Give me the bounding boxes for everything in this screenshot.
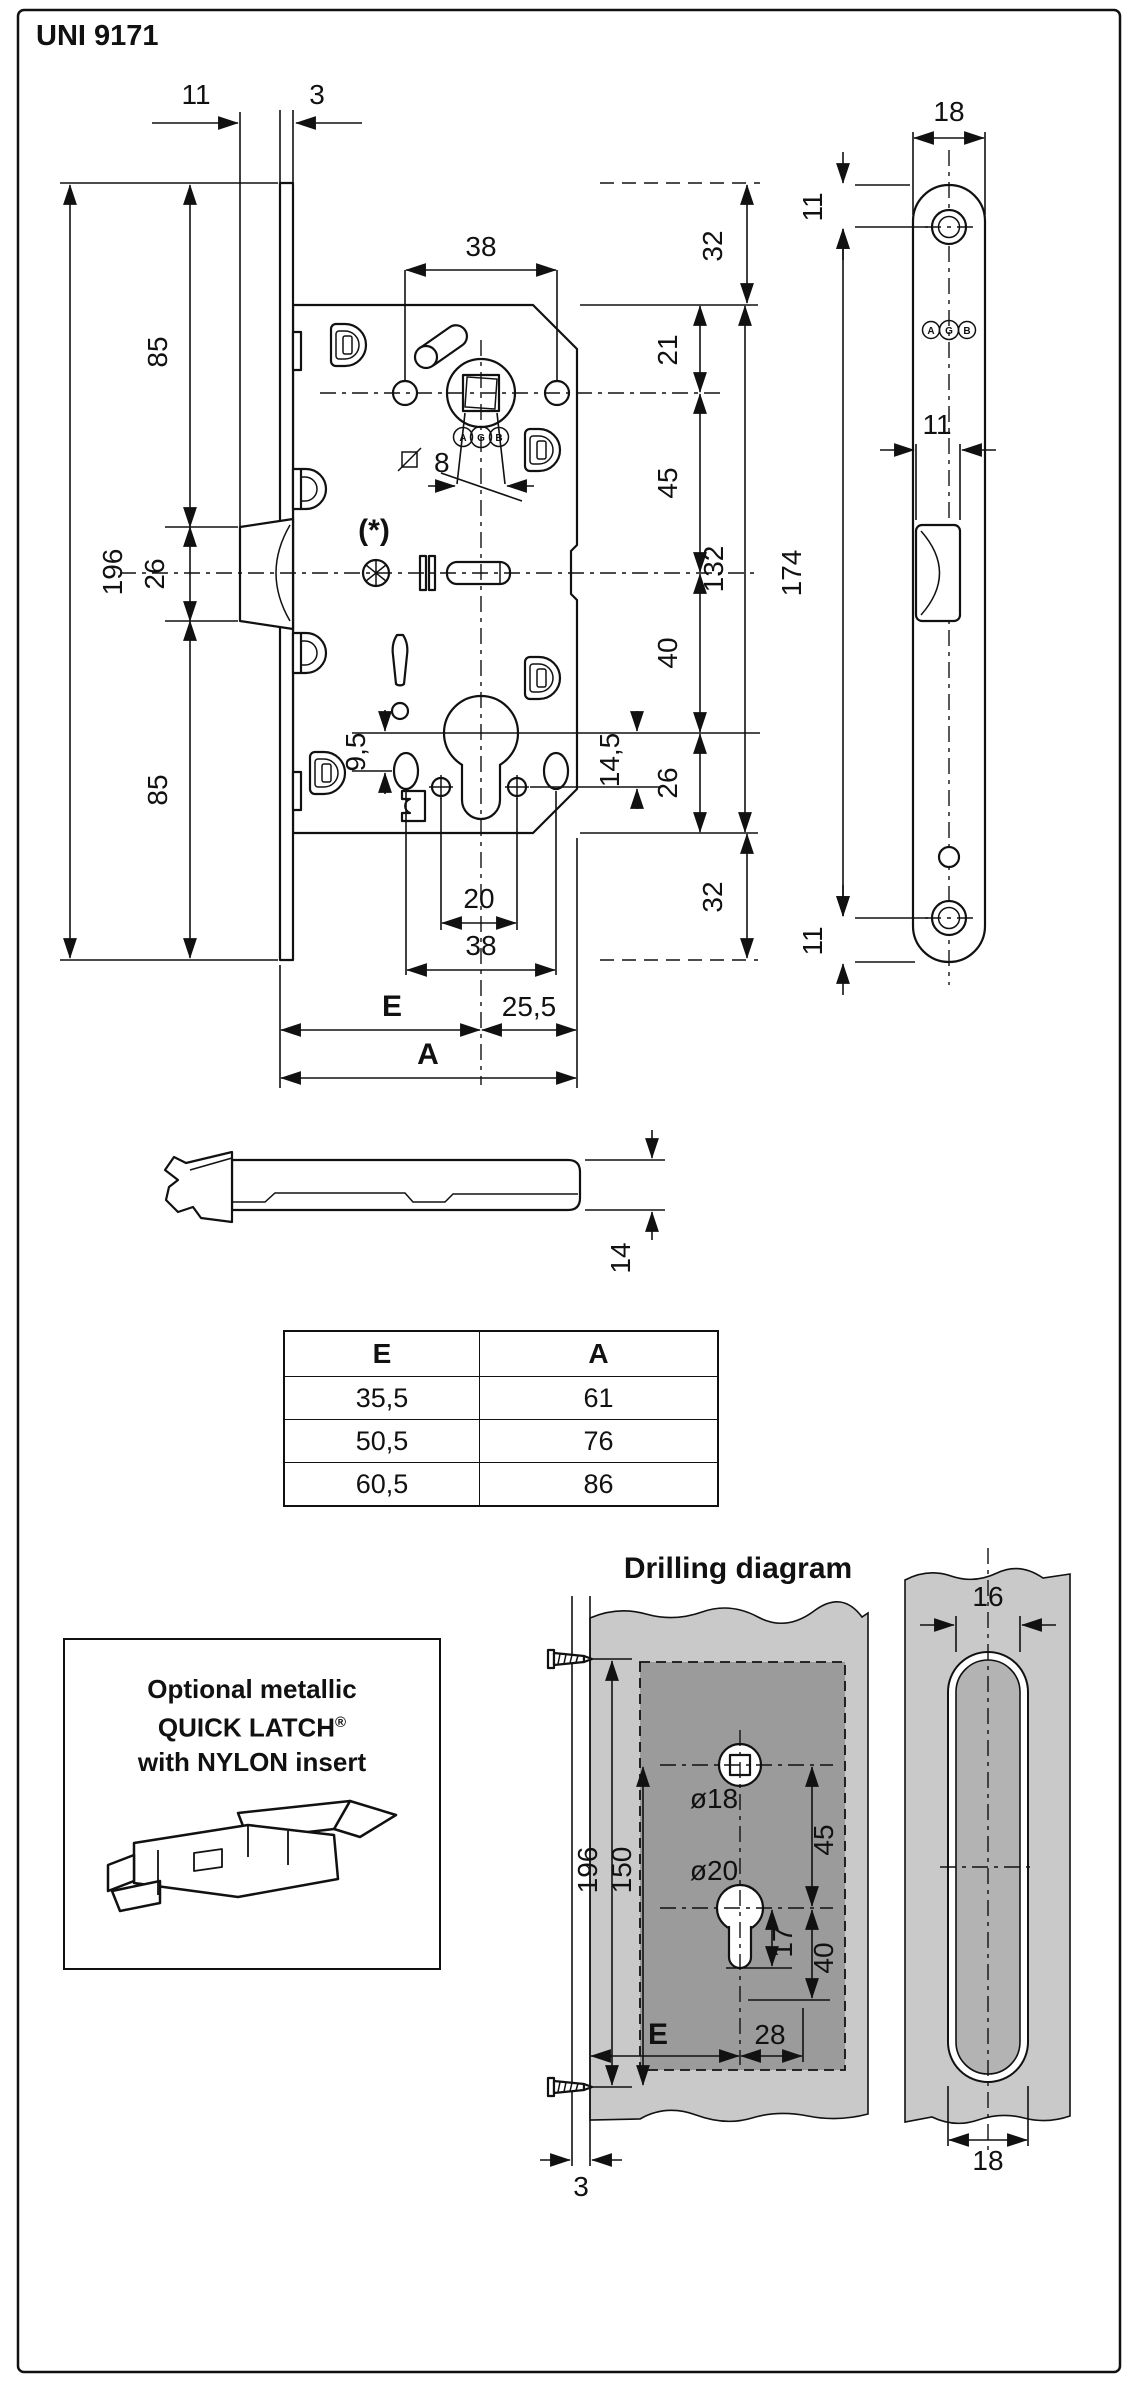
table-header-a: A	[480, 1332, 717, 1376]
dim-margin-top: 32	[697, 230, 728, 261]
registered-mark: ®	[335, 1714, 346, 1731]
faceplate-front-view: A G B	[913, 150, 985, 985]
drill-backset-label: E	[648, 2018, 668, 2051]
table-cell: 50,5	[285, 1420, 480, 1462]
drilling-diagram-title: Drilling diagram	[556, 1552, 920, 1586]
quick-latch-line3: with NYLON insert	[65, 1745, 439, 1779]
dim-drill-40: 40	[808, 1942, 839, 1973]
table-row: 35,5 61	[285, 1376, 717, 1419]
quick-latch-line1: Optional metallic	[65, 1672, 439, 1706]
dim-cylinder-to-bottom: 26	[652, 767, 683, 798]
dimension-lines-latch	[585, 1130, 665, 1240]
dim-cyl-offset-right: 14,5	[594, 733, 625, 788]
dim-fix-holes: 20	[463, 883, 494, 914]
dim-spindle-size: 8	[434, 447, 450, 478]
logo-letter-g2: G	[945, 326, 953, 337]
dim-plate-upper: 85	[142, 336, 173, 367]
quick-latch-box: Optional metallic QUICK LATCH® with NYLO…	[63, 1638, 441, 1970]
table-cell: 60,5	[285, 1463, 480, 1505]
dim-striker-hole-bottom: 11	[797, 926, 828, 955]
door-edge-view	[905, 1548, 1070, 2150]
backset-label: E	[382, 990, 402, 1023]
quick-latch-line2: QUICK LATCH®	[65, 1706, 439, 1745]
dim-margin-bottom: 32	[697, 881, 728, 912]
catalog-page: A G B	[0, 0, 1138, 2382]
dim-striker-hole-top: 11	[797, 192, 828, 221]
quick-latch-brand: QUICK LATCH	[158, 1713, 335, 1743]
logo-letter-a2: A	[927, 326, 934, 337]
logo-letter-b2: B	[963, 326, 970, 337]
lock-body-view: A G B	[240, 183, 577, 960]
dim-plate-thickness: 3	[309, 79, 325, 110]
dim-drill-17: 17	[767, 1926, 798, 1957]
dim-drill-28: 28	[754, 2019, 785, 2050]
dim-cyl-offset-left: 9,5	[340, 733, 371, 772]
dia-cylinder: ø20	[690, 1855, 738, 1886]
dim-drill-screws: 196	[572, 1847, 603, 1894]
table-cell: 86	[480, 1463, 717, 1505]
dim-handle-spacing-bottom: 38	[465, 930, 496, 961]
ea-table: E A 35,5 61 50,5 76 60,5 86	[283, 1330, 719, 1507]
table-header-row: E A	[285, 1332, 717, 1376]
dim-plate-height: 196	[97, 549, 128, 596]
dim-follower-from-top: 21	[652, 334, 683, 365]
dim-drill-150: 150	[606, 1847, 637, 1894]
technical-drawing: A G B	[0, 0, 1138, 2382]
dim-follower-to-latch: 45	[652, 467, 683, 498]
dim-spindle-to-cyl: 45	[808, 1824, 839, 1855]
variant-note: (*)	[358, 514, 390, 547]
overall-label: A	[417, 1038, 439, 1071]
latch-bolt-view	[165, 1152, 580, 1222]
dim-latch-protrusion: 11	[181, 79, 210, 110]
table-header-e: E	[285, 1332, 480, 1376]
table-row: 50,5 76	[285, 1419, 717, 1462]
dim-plate-latch: 26	[139, 558, 170, 589]
page-title: UNI 9171	[36, 20, 159, 53]
table-cell: 35,5	[285, 1377, 480, 1419]
dim-striker-latch-opening: 11	[922, 409, 951, 440]
dim-center-to-edge: 25,5	[502, 991, 557, 1022]
dim-plate-lower: 85	[142, 774, 173, 805]
dim-recess-depth: 3	[573, 2171, 589, 2202]
dim-striker-holes-span: 174	[776, 550, 807, 597]
table-cell: 76	[480, 1420, 717, 1462]
table-row: 60,5 86	[285, 1462, 717, 1505]
dia-spindle: ø18	[690, 1783, 738, 1814]
dim-striker-width: 18	[933, 96, 964, 127]
dim-edge-outer: 18	[972, 2145, 1003, 2176]
dim-edge-inner: 16	[972, 1581, 1003, 1612]
dim-latch-to-cylinder: 40	[652, 637, 683, 668]
dim-case-height: 132	[698, 546, 729, 593]
mortise-pocket	[640, 1662, 845, 2070]
table-cell: 61	[480, 1377, 717, 1419]
dim-handle-spacing-top: 38	[465, 231, 496, 262]
dim-latch-height: 14	[605, 1242, 636, 1273]
